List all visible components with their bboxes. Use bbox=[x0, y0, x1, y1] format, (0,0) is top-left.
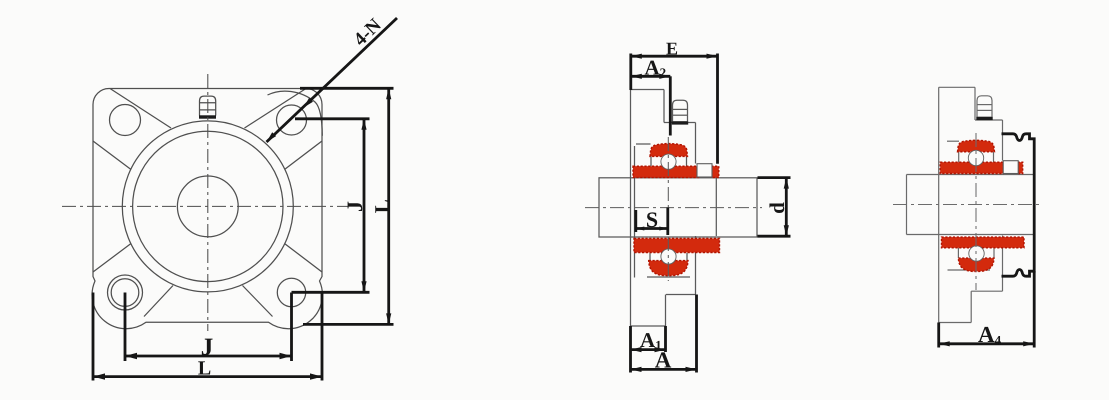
svg-text:E: E bbox=[666, 39, 678, 59]
svg-text:A4: A4 bbox=[978, 322, 1002, 348]
svg-text:A2: A2 bbox=[645, 56, 667, 81]
svg-text:L: L bbox=[198, 358, 211, 380]
svg-text:A: A bbox=[655, 348, 672, 373]
svg-text:L: L bbox=[370, 199, 394, 213]
svg-text:d: d bbox=[765, 202, 789, 214]
svg-text:S: S bbox=[646, 207, 658, 232]
svg-text:4-N: 4-N bbox=[350, 15, 386, 51]
svg-text:J: J bbox=[342, 201, 367, 212]
